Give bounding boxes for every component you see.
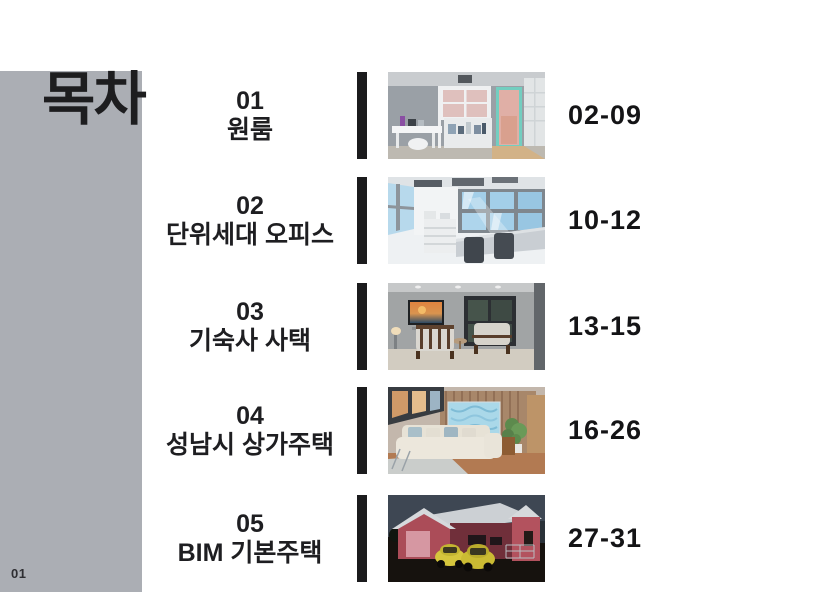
entry-divider-bar	[357, 495, 367, 582]
entry-page-range: 27-31	[568, 523, 642, 554]
sangga-living-room-render	[388, 387, 545, 474]
dormitory-lounge-render	[388, 283, 545, 370]
toc-row-03: 03 기숙사 사택	[150, 283, 730, 370]
entry-number: 03	[150, 299, 350, 325]
entry-page-range: 10-12	[568, 205, 642, 236]
thumbnail-image-office	[388, 177, 545, 264]
page-title: 목차	[42, 70, 145, 131]
entry-divider-bar	[357, 72, 367, 159]
entry-page-range: 16-26	[568, 415, 642, 446]
page-number: 01	[11, 566, 26, 581]
left-gray-panel	[0, 71, 142, 592]
entry-title-block: 02 단위세대 오피스	[150, 177, 350, 264]
entry-title: 단위세대 오피스	[150, 222, 350, 248]
bim-house-night-render	[388, 495, 545, 582]
entry-title-block: 04 성남시 상가주택	[150, 387, 350, 474]
entry-page-range: 13-15	[568, 311, 642, 342]
toc-row-05: 05 BIM 기본주택	[150, 495, 730, 582]
thumbnail-image-studio	[388, 72, 545, 159]
entry-divider-bar	[357, 177, 367, 264]
entry-title: 성남시 상가주택	[150, 432, 350, 458]
toc-row-02: 02 단위세대 오피스	[150, 177, 730, 264]
toc-row-04: 04 성남시 상가주택	[150, 387, 730, 474]
toc-row-01: 01 원룸	[150, 72, 730, 159]
studio-room-render	[388, 72, 545, 159]
entry-divider-bar	[357, 283, 367, 370]
entry-number: 01	[150, 88, 350, 114]
entry-number: 05	[150, 511, 350, 537]
entry-title: 기숙사 사택	[150, 328, 350, 354]
entry-title-block: 01 원룸	[150, 72, 350, 159]
thumbnail-image-bim-house	[388, 495, 545, 582]
entry-divider-bar	[357, 387, 367, 474]
entry-number: 04	[150, 403, 350, 429]
entry-title: BIM 기본주택	[150, 540, 350, 566]
unit-office-render	[388, 177, 545, 264]
entry-number: 02	[150, 193, 350, 219]
entry-title: 원룸	[150, 117, 350, 143]
toc-slide: 목차 01 01 원룸	[0, 0, 814, 597]
thumbnail-image-sangga-house	[388, 387, 545, 474]
entry-page-range: 02-09	[568, 100, 642, 131]
entry-title-block: 05 BIM 기본주택	[150, 495, 350, 582]
thumbnail-image-dormitory	[388, 283, 545, 370]
entry-title-block: 03 기숙사 사택	[150, 283, 350, 370]
